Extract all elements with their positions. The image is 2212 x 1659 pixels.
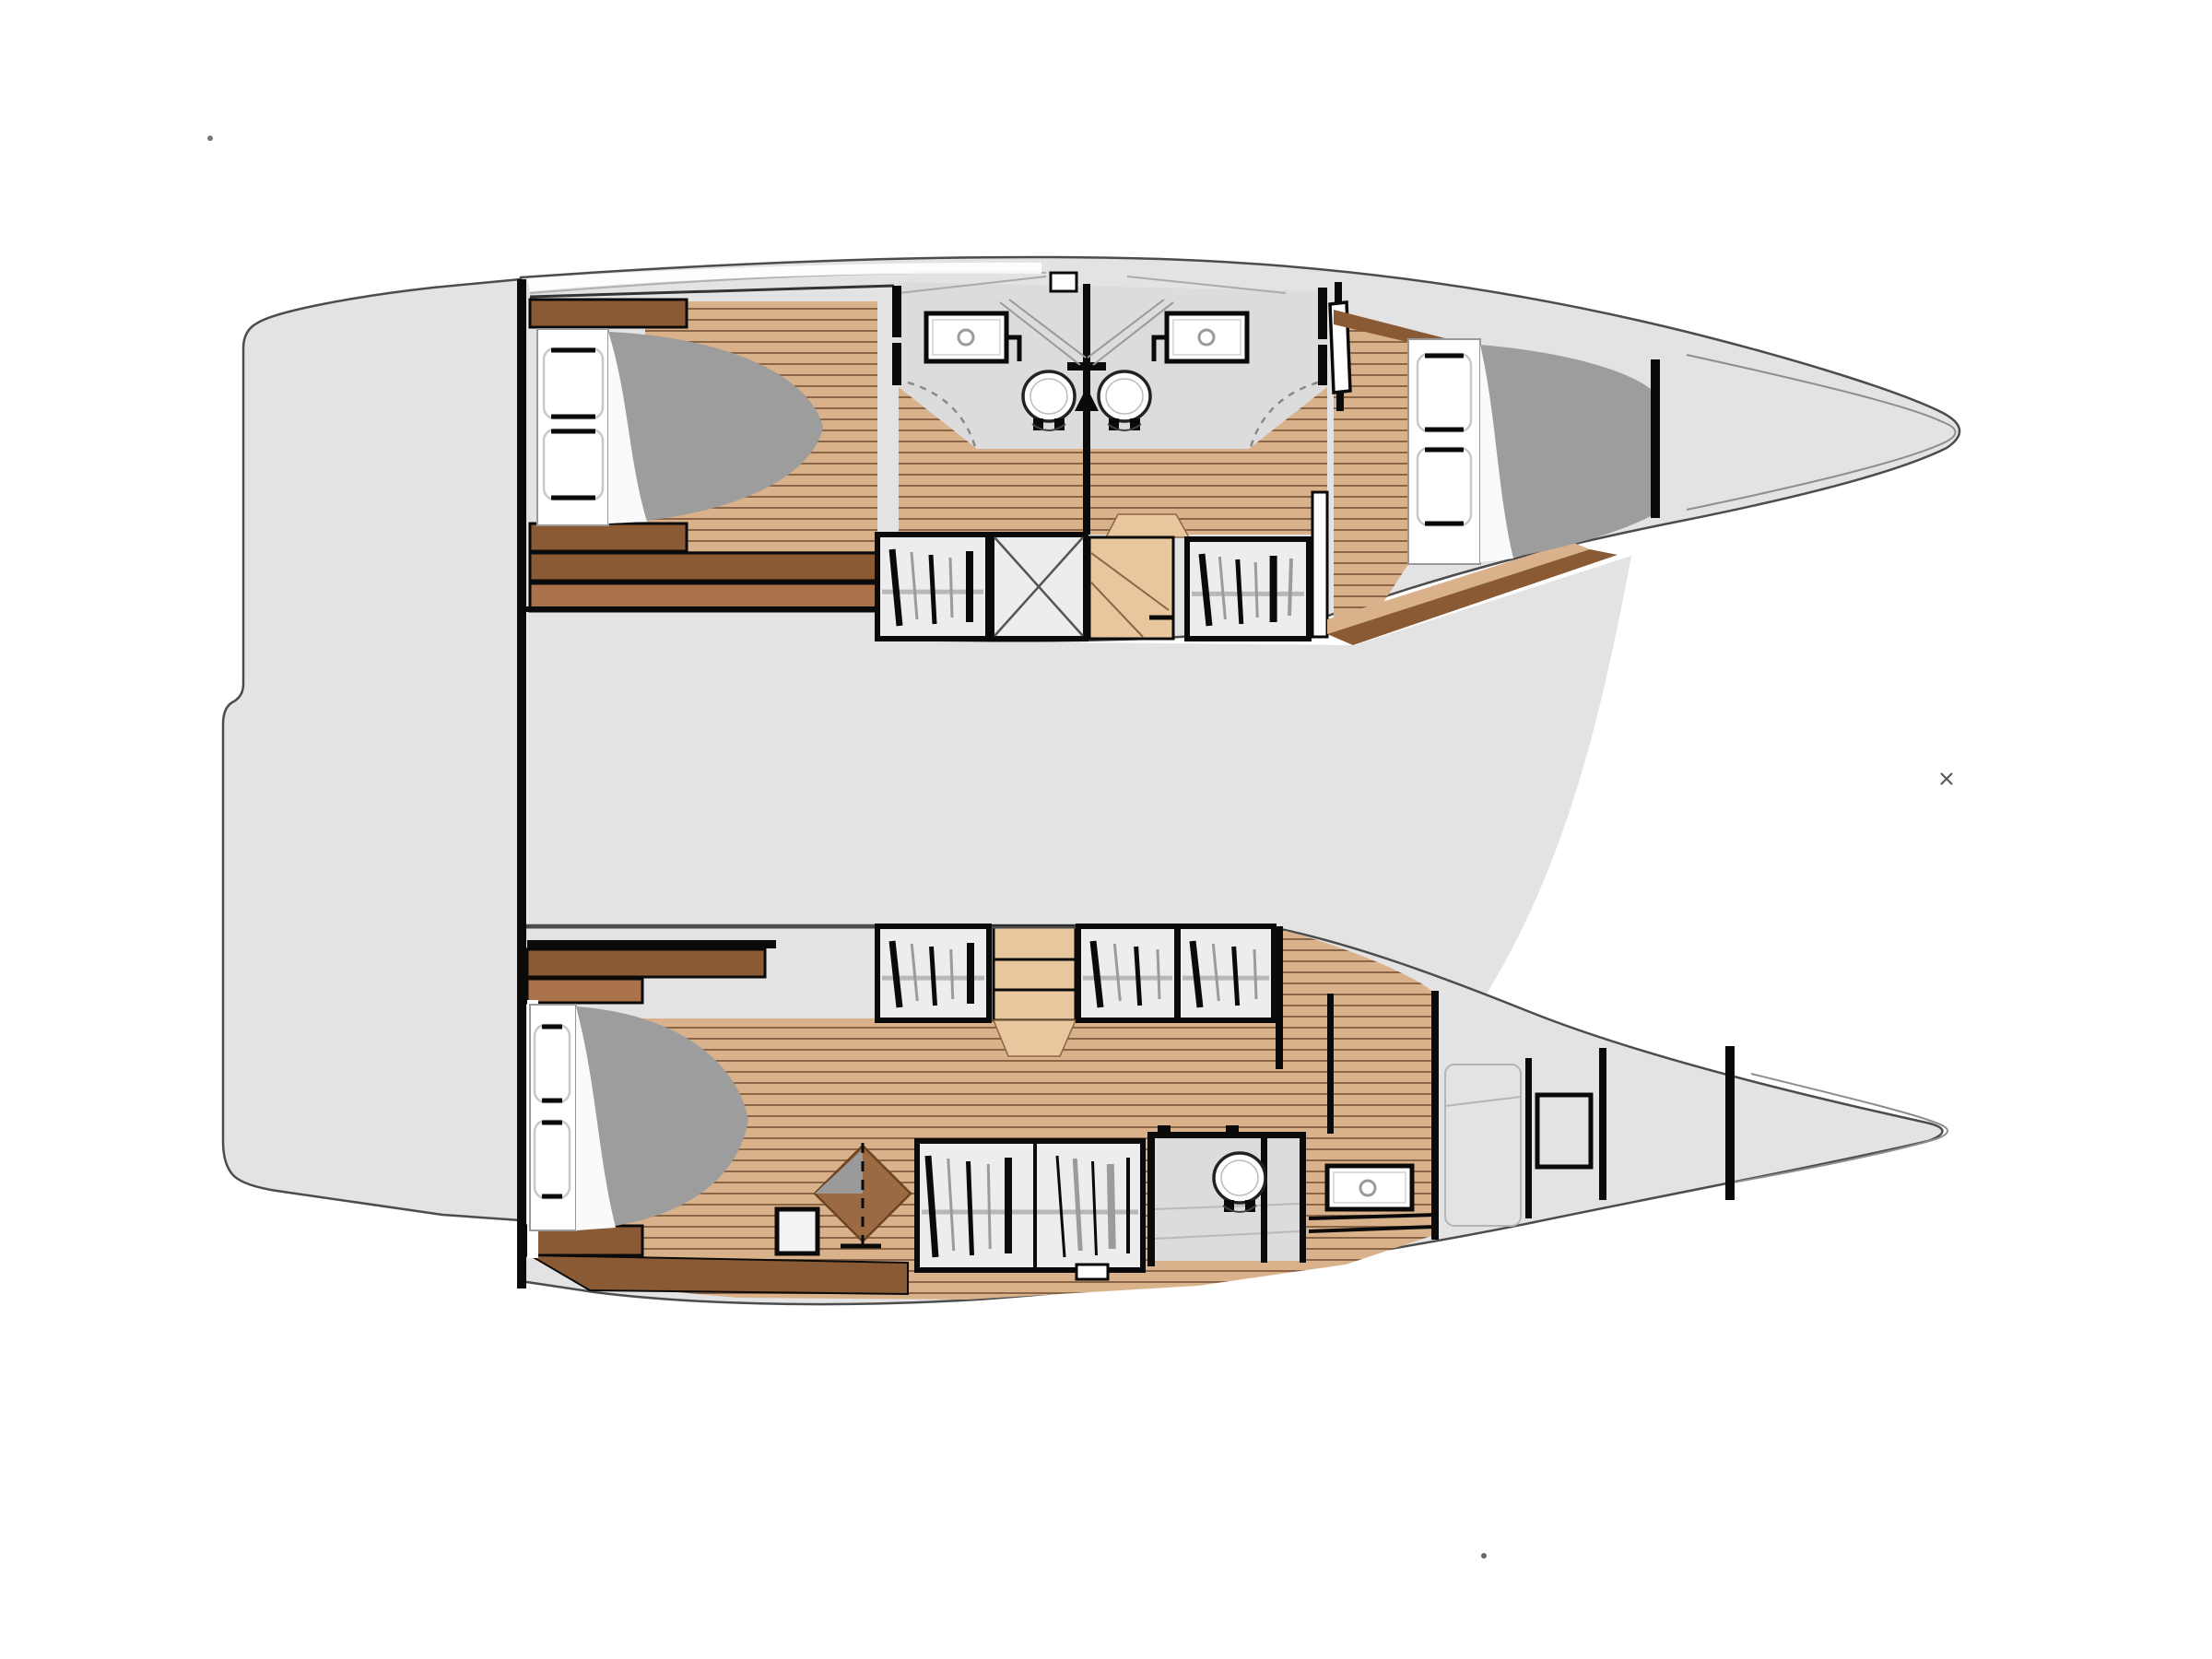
lower-aft-cabin-base-band: [530, 1255, 908, 1294]
pillow: [535, 1121, 570, 1198]
lower-aft-cabin-shelf-2: [527, 979, 642, 1003]
lower-bathroom-hinge-2: [1226, 1125, 1239, 1138]
pillow: [535, 1025, 570, 1102]
lower-hull-wardrobe-a: [877, 926, 989, 1020]
upper-stair-landing: [1106, 514, 1189, 537]
upper-aft-cabin-foot-locker: [530, 524, 687, 551]
upper-hull-fwd-wardrobe: [1187, 539, 1309, 639]
pillow: [1418, 448, 1471, 525]
floorplan-page: [0, 0, 2212, 1659]
lower-hull-aft-cabin-wardrobe: [917, 1141, 1143, 1279]
faucet-icon: [959, 330, 973, 345]
lower-hull-sink: [1327, 1166, 1412, 1209]
upper-aft-cabin-side-locker-1: [530, 553, 877, 581]
main-longitudinal-wall: [517, 279, 526, 1288]
upper-door-stub-bottom: [1336, 393, 1344, 411]
upper-door-stub-top: [1335, 282, 1342, 304]
upper-aft-cabin-shelf: [530, 300, 687, 327]
lower-aft-cabin-shelf-1: [527, 949, 765, 977]
faucet-icon: [1199, 330, 1214, 345]
lower-bathroom-wall-mid: [1261, 1134, 1267, 1263]
lower-bathroom-wall-right: [1300, 1134, 1306, 1263]
aft-deck-platform: [223, 279, 521, 1220]
bathroom-top-notch: [1051, 273, 1077, 291]
companionway-arrow-stem: [1083, 411, 1090, 431]
bathroom-divider-tick: [1067, 362, 1106, 371]
upper-fwd-cabin-door: [1312, 492, 1327, 637]
lower-corridor-wall: [1276, 926, 1283, 1069]
stray-mark-bottom: [1481, 1553, 1487, 1559]
lower-aft-cabin-top-wall: [527, 940, 776, 948]
bathroom-left-wall-lower: [892, 343, 901, 385]
lower-bow-bulkhead: [1725, 1046, 1735, 1200]
faucet-icon: [1360, 1181, 1375, 1195]
lower-bathroom-wall-left: [1147, 1132, 1155, 1266]
bathroom-left-wall-upper: [892, 286, 901, 337]
lower-step-box: [777, 1209, 818, 1253]
lower-bathroom-hinge-1: [1158, 1125, 1171, 1138]
stray-mark-top-left: [207, 135, 213, 141]
pillow: [1418, 354, 1471, 431]
floorplan-canvas: [0, 0, 2212, 1659]
lower-fwd-bulkhead-1: [1431, 991, 1439, 1240]
upper-hull-fwd-berth: [1408, 339, 1651, 564]
upper-bathroom-right-sink: [1167, 313, 1247, 361]
pillow: [544, 429, 603, 500]
bathroom-right-wall-upper: [1318, 288, 1327, 339]
lower-hull-wardrobe-c: [1178, 926, 1274, 1020]
upper-hull-aft-wardrobe: [877, 535, 988, 639]
bathroom-right-wall-lower: [1318, 345, 1327, 385]
lower-hull-wardrobe-b: [1078, 926, 1177, 1020]
pillow: [544, 348, 603, 418]
lower-stairs: [994, 926, 1076, 1020]
lower-bathroom-fwd-wall-upper: [1327, 994, 1334, 1134]
lower-fwd-bulkhead-2: [1525, 1058, 1532, 1218]
upper-bow-bulkhead: [1651, 359, 1660, 518]
lower-fwd-bulkhead-3: [1599, 1048, 1606, 1200]
upper-bathroom-left-sink: [926, 313, 1006, 361]
